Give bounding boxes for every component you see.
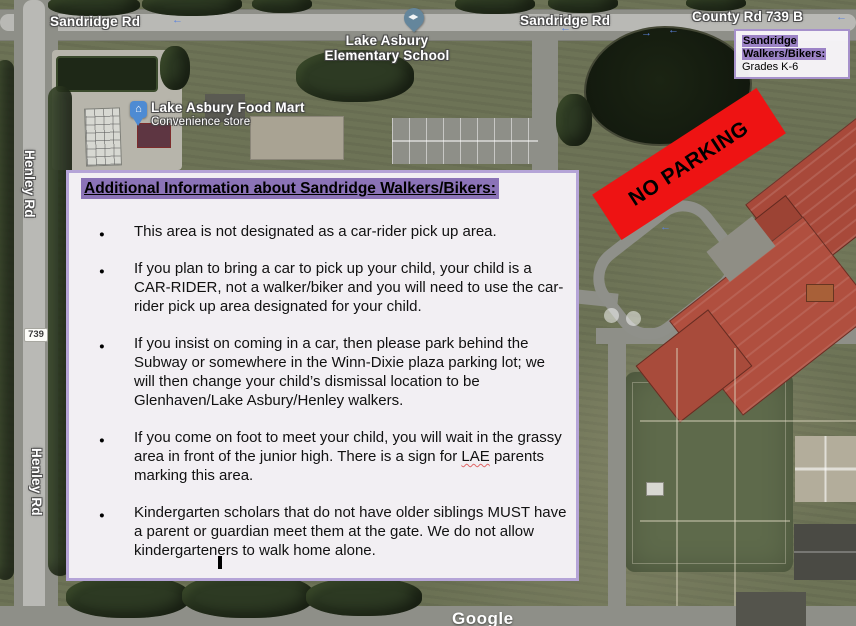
road-label-sandridge-mid: Sandridge Rd: [520, 13, 610, 28]
store-icon: ⌂: [130, 101, 147, 118]
misspelled-word: LAE: [461, 448, 489, 465]
legend-title-line2: Walkers/Bikers:: [742, 48, 826, 60]
road-label-henley-lower: Henley Rd: [29, 448, 44, 516]
route-stop-circle: [604, 308, 619, 323]
school-parking-lot: [392, 118, 538, 164]
info-bullet-5: Kindergarten scholars that do not have o…: [81, 503, 570, 560]
route-shield-739: 739: [24, 328, 48, 342]
food-mart-roof: [84, 107, 122, 166]
poi-school-line1: Lake Asbury: [322, 33, 452, 48]
traffic-arrow-icon: ←: [668, 25, 679, 35]
tree-cluster: [66, 576, 190, 618]
henley-route-overlay: [23, 0, 45, 626]
field-path: [676, 348, 678, 606]
traffic-arrow-icon: ←: [836, 12, 847, 22]
tree-strip: [0, 60, 14, 580]
field-path: [734, 348, 736, 606]
traffic-arrow-icon: ←: [172, 15, 183, 25]
basketball-court-dark: [794, 524, 856, 580]
road-label-sandridge-left: Sandridge Rd: [50, 14, 140, 29]
legend-box[interactable]: Sandridge Walkers/Bikers: Grades K-6: [734, 29, 850, 79]
retention-pond: [56, 56, 158, 92]
info-bullet-3: If you insist on coming in a car, then p…: [81, 334, 570, 410]
small-outbuilding: [806, 284, 834, 302]
field-boundary: [632, 382, 786, 564]
poi-food-mart-name: Lake Asbury Food Mart: [151, 101, 305, 115]
traffic-arrow-icon: →: [641, 28, 652, 38]
poi-label-school[interactable]: Lake Asbury Elementary School: [322, 33, 452, 63]
info-bullet-2: If you plan to bring a car to pick up yo…: [81, 259, 570, 316]
text-cursor: [218, 556, 222, 569]
tree-cluster: [306, 578, 422, 616]
info-box[interactable]: Additional Information about Sandridge W…: [66, 170, 579, 581]
pin-tail: [133, 118, 143, 126]
poi-school-line2: Elementary School: [322, 48, 452, 63]
graduation-cap-icon: [408, 14, 418, 20]
field-path: [640, 420, 856, 422]
legend-subtitle: Grades K-6: [742, 61, 842, 74]
field-path: [640, 520, 790, 522]
court-dark-small: [736, 592, 806, 626]
tree-cluster: [160, 46, 190, 90]
tree-cluster: [556, 94, 592, 146]
tennis-courts-light: [795, 436, 856, 502]
road-label-henley-upper: Henley Rd: [22, 150, 37, 218]
legend-title-line1: Sandridge: [742, 35, 798, 47]
route-stop-circle: [626, 311, 641, 326]
traffic-arrow-icon: ←: [660, 222, 671, 232]
google-watermark: Google: [452, 609, 514, 626]
info-bullet-4: If you come on foot to meet your child, …: [81, 428, 570, 485]
info-bullet-1: This area is not designated as a car-rid…: [81, 222, 570, 241]
food-mart-pin-icon[interactable]: ⌂: [130, 101, 147, 126]
info-bullet-list: This area is not designated as a car-rid…: [81, 222, 570, 560]
road-label-county-739b: County Rd 739 B: [692, 9, 803, 24]
poi-food-mart-category: Convenience store: [151, 115, 305, 129]
field-structure: [646, 482, 664, 496]
map-slide-screenshot: ← ← ← ← ← → ← Sandridge Rd Sandridge Rd …: [0, 0, 856, 626]
info-box-heading: Additional Information about Sandridge W…: [81, 178, 499, 199]
campus-road-vertical: [608, 340, 626, 626]
poi-label-food-mart[interactable]: Lake Asbury Food Mart Convenience store: [151, 101, 305, 129]
